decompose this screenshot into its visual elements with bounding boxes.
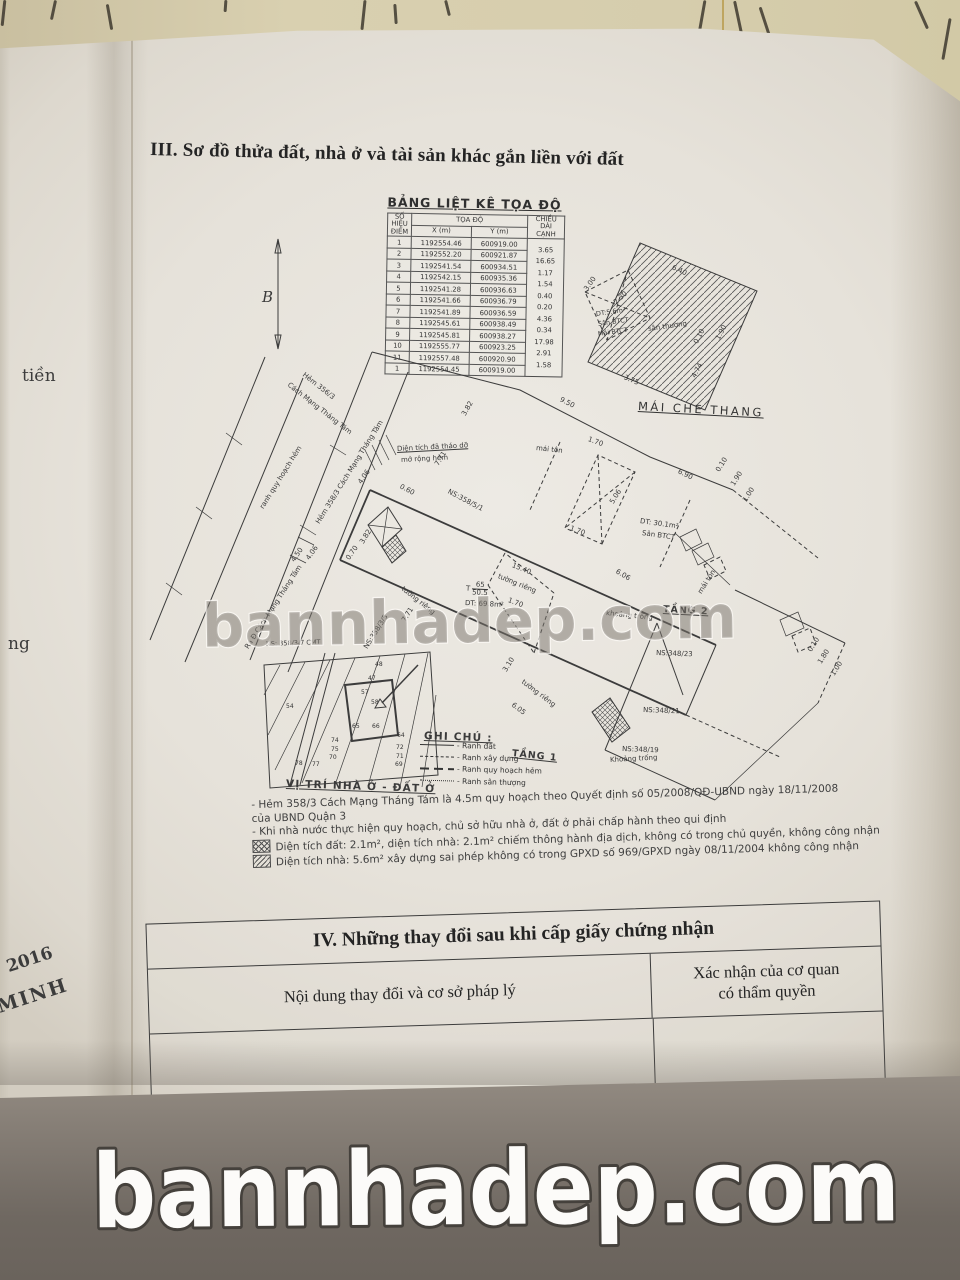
photo-of-land-certificate: tiền ng 2016 MINH III. Sơ đồ thửa đất, n… — [0, 0, 960, 1280]
side-text-fragment: ng — [8, 634, 30, 654]
side-text-fragment: tiền — [22, 366, 56, 386]
hatch-swatch-icon — [253, 854, 271, 867]
marble-vein — [50, 0, 57, 20]
wall-gold-line — [722, 0, 724, 30]
marble-vein — [224, 0, 228, 12]
marble-vein — [914, 1, 929, 30]
watermark-text: bannhadep.com — [201, 583, 737, 661]
watermark-bottom: bannhadep.com — [0, 1102, 960, 1280]
marble-vein — [1, 0, 7, 26]
marble-vein — [106, 4, 113, 30]
crosshatch-swatch-icon — [252, 839, 270, 852]
watermark-middle: bannhadep.com — [199, 583, 745, 670]
section4-col2-header: Xác nhận của cơ quan có thẩm quyền — [651, 947, 883, 1018]
watermark-text: bannhadep.com — [91, 1126, 900, 1252]
section4-col2-line1: Xác nhận của cơ quan — [693, 959, 840, 984]
marble-vein — [444, 0, 451, 16]
photo-bottom-shadow — [0, 1040, 960, 1085]
marble-vein — [393, 4, 397, 24]
left-page-edge — [0, 28, 10, 1280]
photo-dark-band: bannhadep.com — [0, 1072, 960, 1280]
section4-col2-line2: có thẩm quyền — [718, 981, 816, 1005]
marble-vein — [941, 18, 951, 60]
right-page-curve — [890, 30, 960, 1080]
marble-vein — [360, 0, 366, 30]
